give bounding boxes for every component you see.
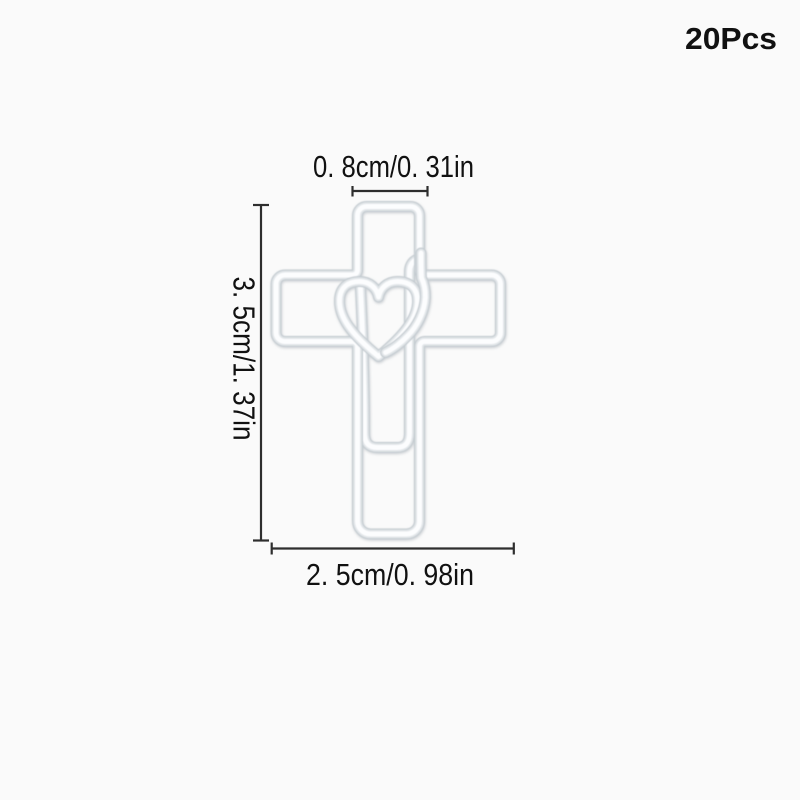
svg-text:2. 5cm/0. 98in: 2. 5cm/0. 98in xyxy=(306,558,474,592)
svg-text:0. 8cm/0. 31in: 0. 8cm/0. 31in xyxy=(313,150,474,184)
svg-text:20Pcs: 20Pcs xyxy=(685,21,777,56)
svg-text:3. 5cm/1. 37in: 3. 5cm/1. 37in xyxy=(227,277,261,441)
